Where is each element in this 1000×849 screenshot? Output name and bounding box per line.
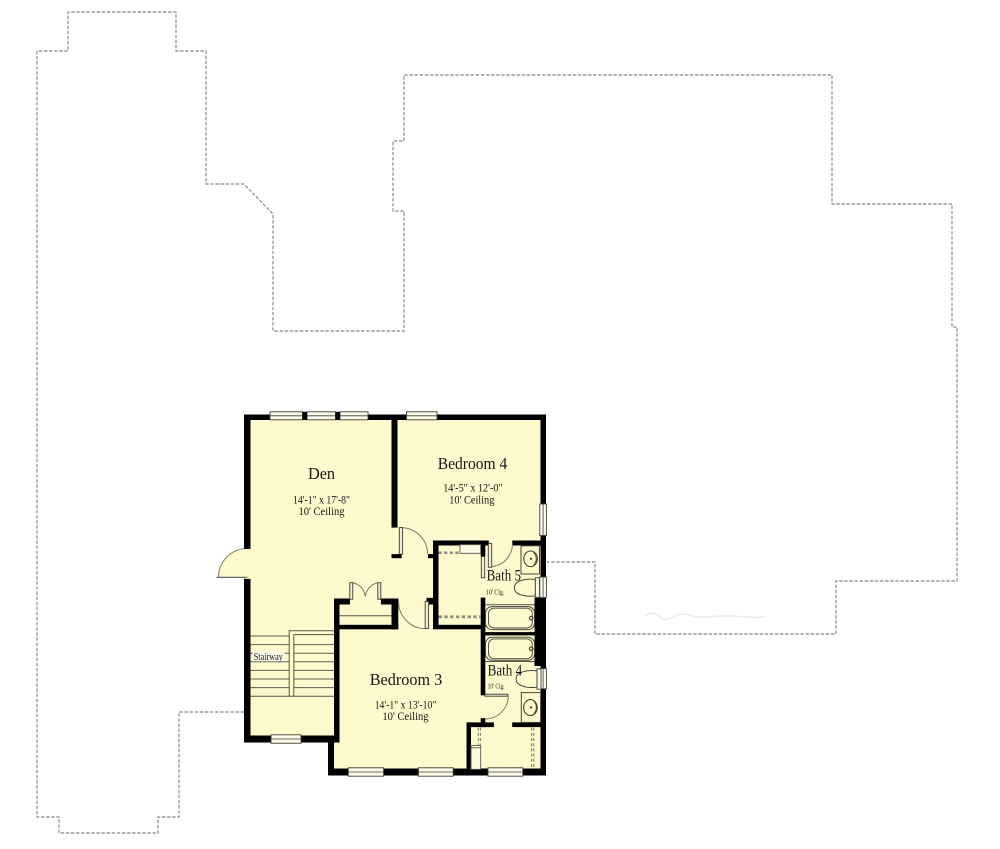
svg-text:10' Clg.: 10' Clg.: [488, 682, 505, 690]
svg-text:Bedroom 3: Bedroom 3: [370, 670, 443, 689]
svg-text:Stairway: Stairway: [254, 651, 283, 663]
svg-text:10' Ceiling: 10' Ceiling: [449, 494, 494, 506]
svg-text:Bedroom 4: Bedroom 4: [438, 454, 508, 473]
svg-text:14'-1" x 13'-10": 14'-1" x 13'-10": [375, 700, 437, 712]
svg-text:14'-5" x 12'-0": 14'-5" x 12'-0": [443, 482, 502, 494]
svg-text:Bath 5: Bath 5: [487, 567, 521, 584]
svg-text:10' Ceiling: 10' Ceiling: [299, 506, 345, 518]
svg-text:10' Ceiling: 10' Ceiling: [382, 711, 428, 723]
svg-text:10' Clg.: 10' Clg.: [486, 589, 505, 597]
svg-text:14'-1" x 17'-8": 14'-1" x 17'-8": [293, 495, 350, 507]
svg-text:Den: Den: [308, 464, 335, 483]
svg-text:Bath 4: Bath 4: [488, 662, 523, 679]
